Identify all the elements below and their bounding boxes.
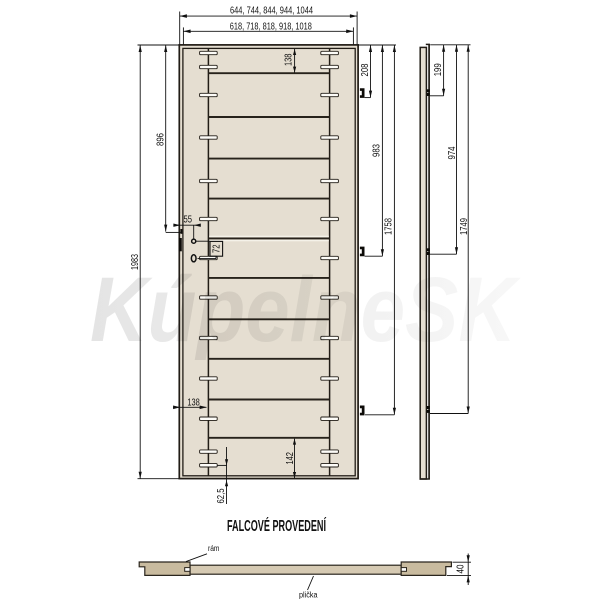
svg-text:plička: plička bbox=[299, 590, 318, 599]
svg-text:1749: 1749 bbox=[458, 218, 470, 235]
svg-text:983: 983 bbox=[371, 144, 383, 157]
svg-text:72: 72 bbox=[211, 244, 223, 253]
svg-text:55: 55 bbox=[183, 213, 192, 225]
svg-text:rám: rám bbox=[208, 544, 220, 553]
svg-text:KúpelneSK: KúpelneSK bbox=[90, 259, 522, 361]
svg-text:1758: 1758 bbox=[383, 218, 395, 235]
svg-text:199: 199 bbox=[432, 63, 444, 76]
svg-text:138: 138 bbox=[283, 53, 295, 66]
svg-text:40: 40 bbox=[455, 564, 467, 573]
svg-text:974: 974 bbox=[446, 146, 458, 159]
svg-text:142: 142 bbox=[284, 452, 296, 465]
svg-text:618, 718, 818, 918, 1018: 618, 718, 818, 918, 1018 bbox=[230, 20, 312, 32]
svg-text:644, 744, 844, 944, 1044: 644, 744, 844, 944, 1044 bbox=[230, 5, 313, 17]
svg-text:896: 896 bbox=[154, 133, 166, 146]
svg-text:62,5: 62,5 bbox=[215, 488, 227, 503]
svg-text:FALCOVÉ PROVEDENÍ: FALCOVÉ PROVEDENÍ bbox=[227, 518, 326, 535]
svg-text:138: 138 bbox=[187, 396, 200, 408]
svg-text:208: 208 bbox=[359, 63, 371, 76]
